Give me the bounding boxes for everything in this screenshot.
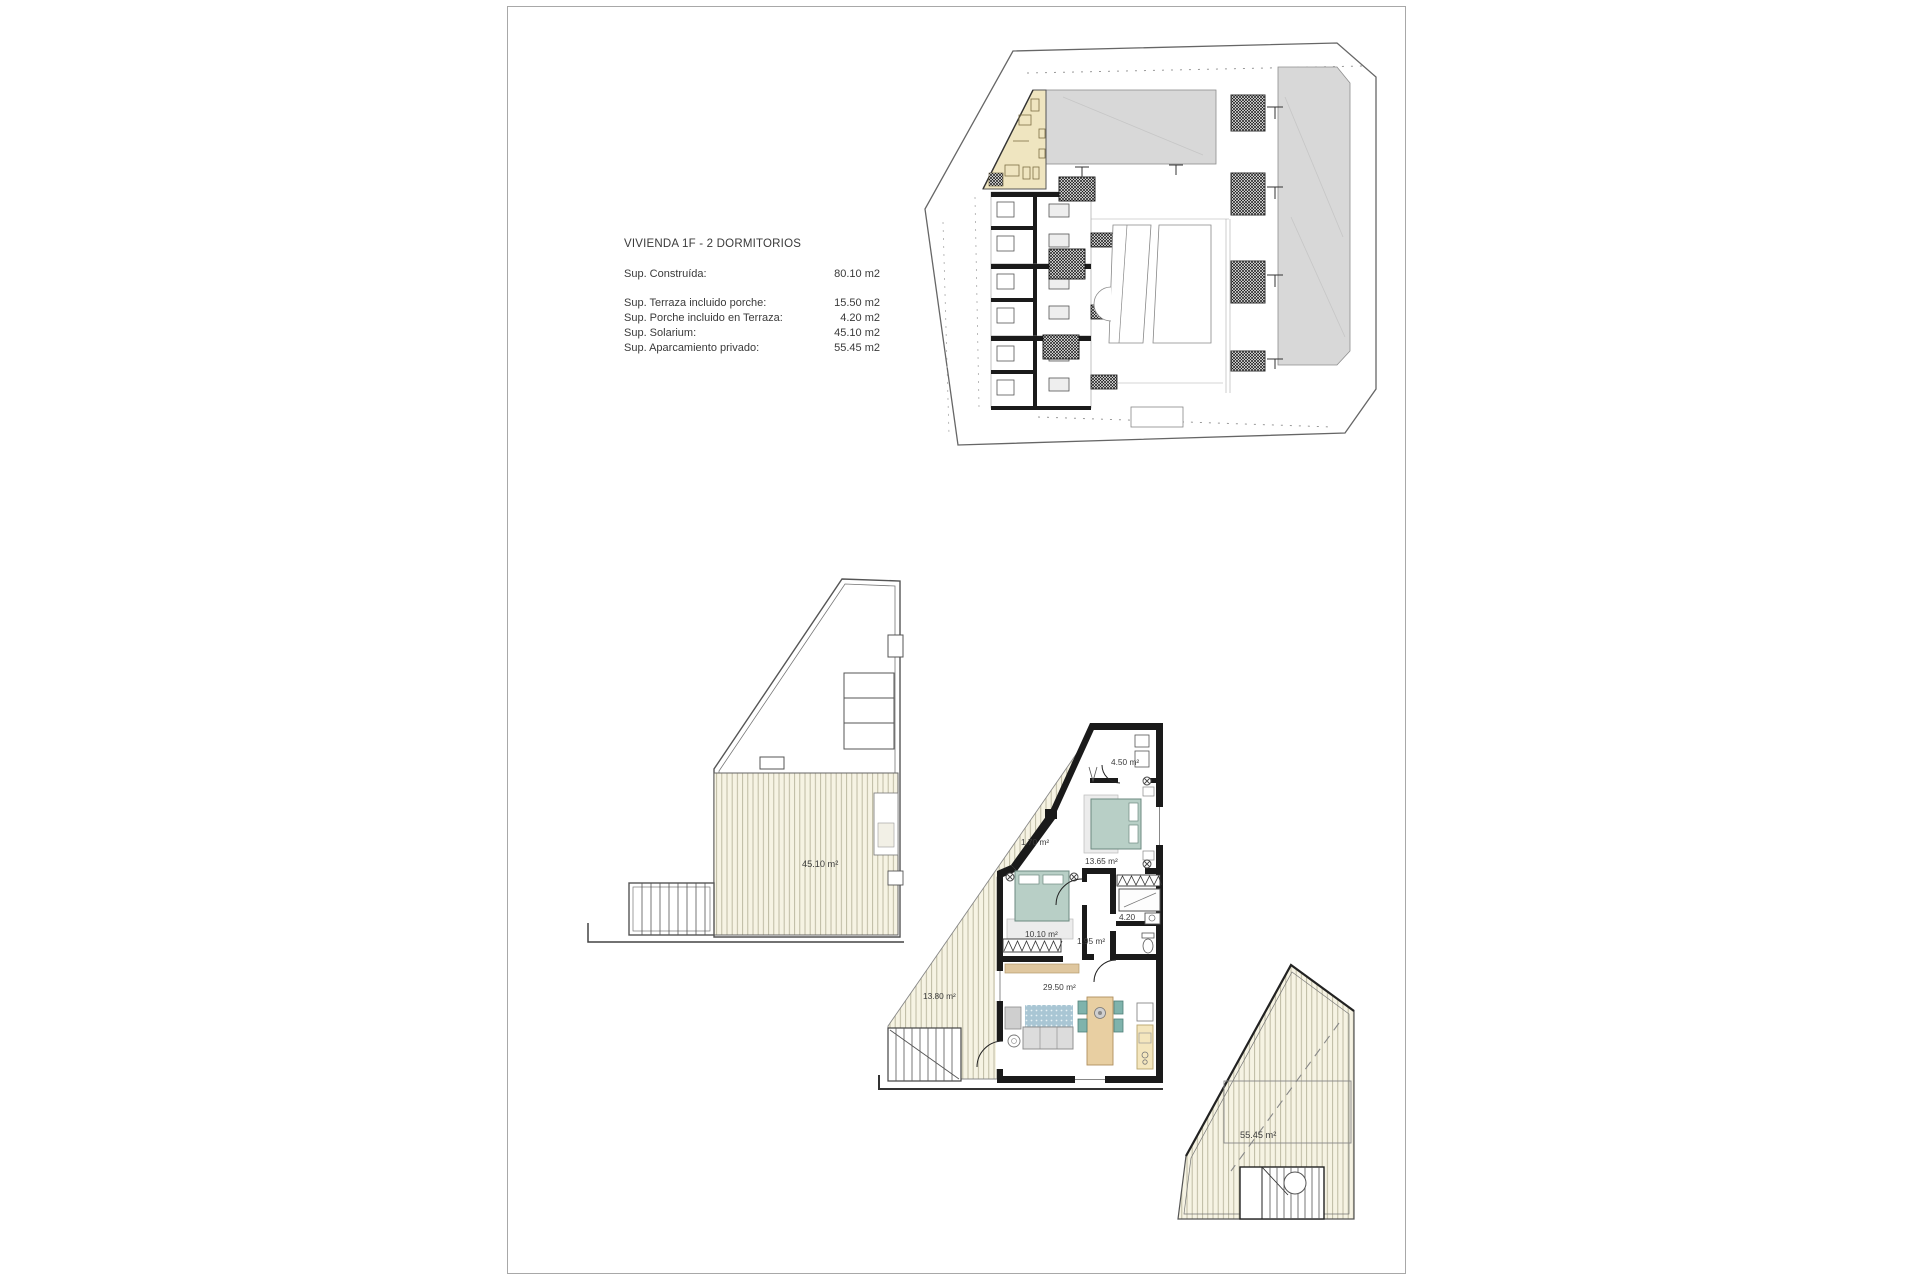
drawing-sheet: VIVIENDA 1F - 2 DORMITORIOS Sup. Constru…	[507, 6, 1406, 1274]
canvas: { "page": { "info": { "title": "VIVIENDA…	[0, 0, 1920, 1280]
fridge	[1137, 1003, 1153, 1021]
kitchen-counter	[1137, 1025, 1153, 1069]
solarium-plan: 45.10 m²	[586, 571, 906, 951]
surface-value: 45.10 m2	[834, 326, 880, 341]
surface-label: Sup. Terraza incluido porche:	[624, 296, 766, 311]
surface-label: Sup. Solarium:	[624, 326, 696, 341]
parking-area-label: 55.45 m²	[1240, 1130, 1276, 1140]
surface-label: Sup. Aparcamiento privado:	[624, 341, 759, 356]
corridor-area-label: 1.70 m²	[1021, 837, 1049, 847]
surface-row: Sup. Aparcamiento privado: 55.45 m2	[624, 341, 880, 356]
main-stairs	[888, 1028, 961, 1081]
terrace-area-label: 13.80 m²	[923, 991, 956, 1001]
bath-area-label: 4.20	[1119, 912, 1136, 922]
surface-table: VIVIENDA 1F - 2 DORMITORIOS Sup. Constru…	[624, 238, 880, 356]
bedroom2-area-label: 10.10 m²	[1025, 929, 1058, 939]
main-floor-plan: 13.80 m²	[879, 723, 1174, 1108]
sofa	[1023, 1027, 1073, 1049]
surface-value: 80.10 m2	[834, 267, 880, 282]
parking-stairs	[1240, 1167, 1324, 1219]
solarium-area-label: 45.10 m²	[802, 859, 838, 869]
surface-value: 15.50 m2	[834, 296, 880, 311]
tv-unit	[1005, 1007, 1021, 1029]
plan-title: VIVIENDA 1F - 2 DORMITORIOS	[624, 238, 880, 250]
bedroom1-area-label: 13.65 m²	[1085, 856, 1118, 866]
surface-value: 55.45 m2	[834, 341, 880, 356]
side-table	[1008, 1035, 1020, 1047]
surface-row: Sup. Porche incluido en Terraza: 4.20 m2	[624, 311, 880, 326]
surface-label: Sup. Porche incluido en Terraza:	[624, 311, 783, 326]
site-plan	[913, 37, 1405, 449]
surface-label: Sup. Construída:	[624, 267, 707, 282]
surface-row: Sup. Construída: 80.10 m2	[624, 267, 880, 282]
surface-value: 4.20 m2	[840, 311, 880, 326]
solarium-stairs	[629, 883, 714, 935]
hall-area-label: 1.95 m²	[1077, 936, 1105, 946]
utility-area-label: 4.50 m²	[1111, 757, 1139, 767]
solarium-deck: 45.10 m²	[714, 773, 903, 935]
living-area-label: 29.50 m²	[1043, 982, 1076, 992]
surface-row: Sup. Solarium: 45.10 m2	[624, 326, 880, 341]
parking-plan: 55.45 m²	[1176, 951, 1366, 1251]
surface-row: Sup. Terraza incluido porche: 15.50 m2	[624, 296, 880, 311]
